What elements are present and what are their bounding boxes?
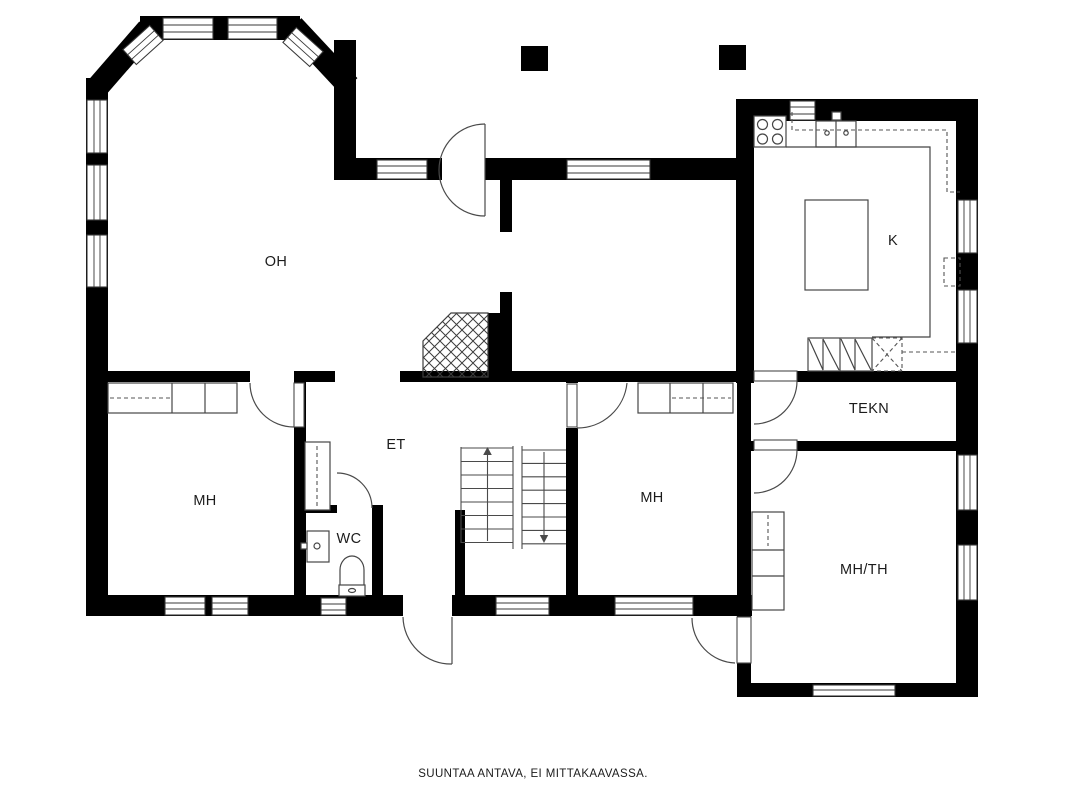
room-label-wc: WC <box>337 531 362 547</box>
window-icon <box>212 597 248 615</box>
wardrobe-icon <box>638 383 733 413</box>
window-icon <box>87 165 107 220</box>
appliance-icon <box>808 338 872 371</box>
wc-right-wall <box>372 505 383 597</box>
right-wall <box>956 99 978 697</box>
fireplace-wall-chunk <box>488 313 512 382</box>
window-icon <box>958 290 977 343</box>
kitchen-island-icon <box>805 200 868 290</box>
window-icon <box>958 455 977 510</box>
window-icon <box>615 597 693 615</box>
wardrobe-icon <box>108 383 237 413</box>
room-label-mh-th: MH/TH <box>840 562 888 578</box>
room-label-et: ET <box>386 437 405 453</box>
window-icon <box>958 200 977 253</box>
window-icon <box>228 18 277 39</box>
closet-icon <box>305 442 330 510</box>
window-icon <box>790 101 815 120</box>
window-icon <box>567 160 650 179</box>
main-interior-wall <box>108 371 962 382</box>
porch-pillar-icon <box>521 46 548 71</box>
oh-divider-stub-upper <box>500 169 512 232</box>
window-icon <box>813 685 895 696</box>
window-icon <box>496 597 549 615</box>
oh-divider-stub-lower <box>500 292 512 313</box>
wardrobe-icon <box>752 512 784 610</box>
room-label-k: K <box>888 233 898 249</box>
window-icon <box>87 235 107 287</box>
window-icon <box>958 545 977 600</box>
floor-plan-page: OH K TEKN ET MH MH WC MH/TH SUUNTAA ANTA… <box>0 0 1066 800</box>
window-icon <box>377 160 427 179</box>
stair-left-wall <box>455 510 465 597</box>
room-label-mh-right: MH <box>640 490 663 506</box>
room-label-oh: OH <box>265 254 288 270</box>
room-label-mh-left: MH <box>193 493 216 509</box>
window-icon <box>165 597 205 615</box>
floor-plan-canvas: OH K TEKN ET MH MH WC MH/TH SUUNTAA ANTA… <box>0 0 1066 800</box>
room-label-tekn: TEKN <box>849 401 889 417</box>
toilet-icon <box>339 556 365 596</box>
stove-icon <box>754 116 786 147</box>
porch-pillar-icon <box>719 45 746 70</box>
kitchen-left-wall <box>736 99 754 383</box>
left-wall-lower <box>86 370 108 616</box>
window-icon <box>163 18 213 39</box>
window-icon <box>87 100 107 153</box>
window-icon <box>321 598 346 615</box>
caption: SUUNTAA ANTAVA, EI MITTAKAAVASSA. <box>418 768 648 780</box>
